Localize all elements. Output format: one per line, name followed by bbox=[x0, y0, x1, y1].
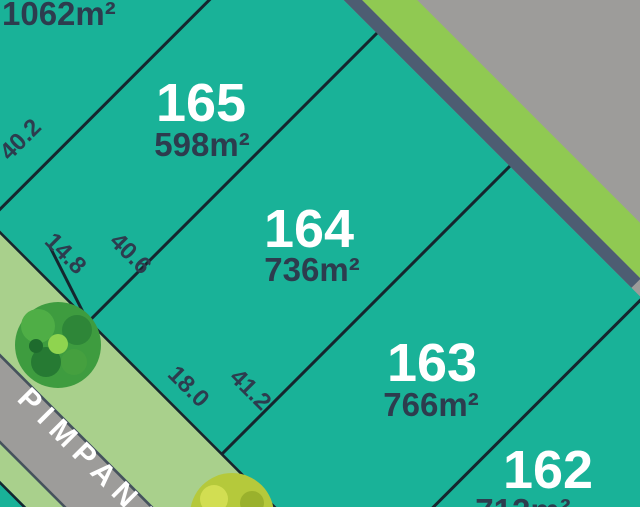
lot-162-number-label: 162 bbox=[503, 440, 593, 500]
lot-164-number-label: 164 bbox=[264, 199, 354, 259]
lot-165-area-label: 598m² bbox=[154, 126, 249, 163]
lot-163-number-label: 163 bbox=[387, 333, 477, 393]
lot-163-area-label: 766m² bbox=[383, 386, 478, 423]
lot-165-number-label: 165 bbox=[156, 73, 246, 133]
lot-1062-area-label: 1062m² bbox=[2, 0, 116, 32]
lot-164-area-label: 736m² bbox=[264, 251, 359, 288]
subdivision-plan-canvas: 1062m² 165 598m² 164 736m² 163 766m² 162… bbox=[0, 0, 640, 507]
street-tree-icon bbox=[15, 302, 101, 388]
site-plan-map: 1062m² 165 598m² 164 736m² 163 766m² 162… bbox=[0, 0, 640, 507]
lot-162-area-label: 712m² bbox=[475, 492, 570, 507]
